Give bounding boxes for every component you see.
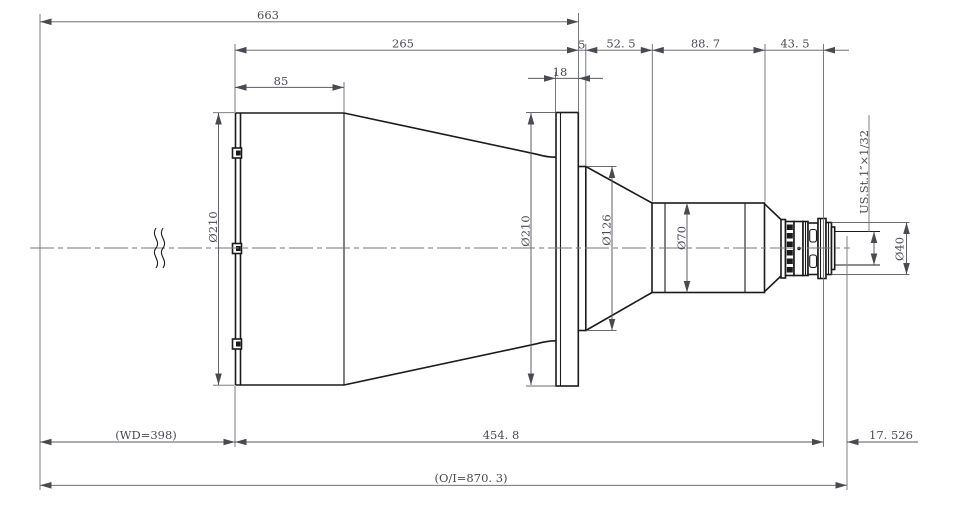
dim-overall-length: 663 <box>257 8 279 22</box>
dim-taper-length: 52. 5 <box>606 37 635 51</box>
dim-back-focal: 17. 526 <box>869 428 913 442</box>
rear-flange-ring <box>818 219 826 279</box>
drawing-canvas: 663 265 85 18 5 52. 5 88. 7 43. 5 (WD=39… <box>0 0 971 520</box>
dia-front-label: Ø210 <box>206 211 220 242</box>
dim-working-distance: (WD=398) <box>115 428 177 442</box>
dia-mid-label: Ø126 <box>600 214 614 245</box>
thread-spec-label: US.St.1″×1/32 <box>857 130 871 214</box>
dim-front-to-flange: 265 <box>392 37 414 51</box>
dia-rear-label: Ø40 <box>893 237 907 261</box>
taper-top <box>344 113 556 157</box>
thread-shoulder <box>832 227 835 270</box>
extension-lines <box>40 13 910 490</box>
dim-hood-front: 85 <box>274 74 289 88</box>
drawing-sheet: 663 265 85 18 5 52. 5 88. 7 43. 5 (WD=39… <box>0 0 971 520</box>
dim-barrel-length: 88. 7 <box>691 37 720 51</box>
dim-rear-length: 43. 5 <box>780 37 809 51</box>
dia-flange-label: Ø210 <box>519 215 533 246</box>
flange <box>556 113 578 387</box>
dim-flange-to-image: 454. 8 <box>483 428 520 442</box>
dim-flange-thickness: 18 <box>553 65 568 79</box>
dia-barrel-label: Ø70 <box>675 226 689 250</box>
lens-outline <box>233 113 881 387</box>
ring-126 <box>578 167 586 331</box>
dim-ring-width: 5 <box>578 37 585 51</box>
dim-object-image: (O/I=870. 3) <box>434 471 507 485</box>
taper-bottom <box>344 341 556 385</box>
dimension-arrows <box>40 19 910 489</box>
set-screw-dot <box>797 247 800 250</box>
